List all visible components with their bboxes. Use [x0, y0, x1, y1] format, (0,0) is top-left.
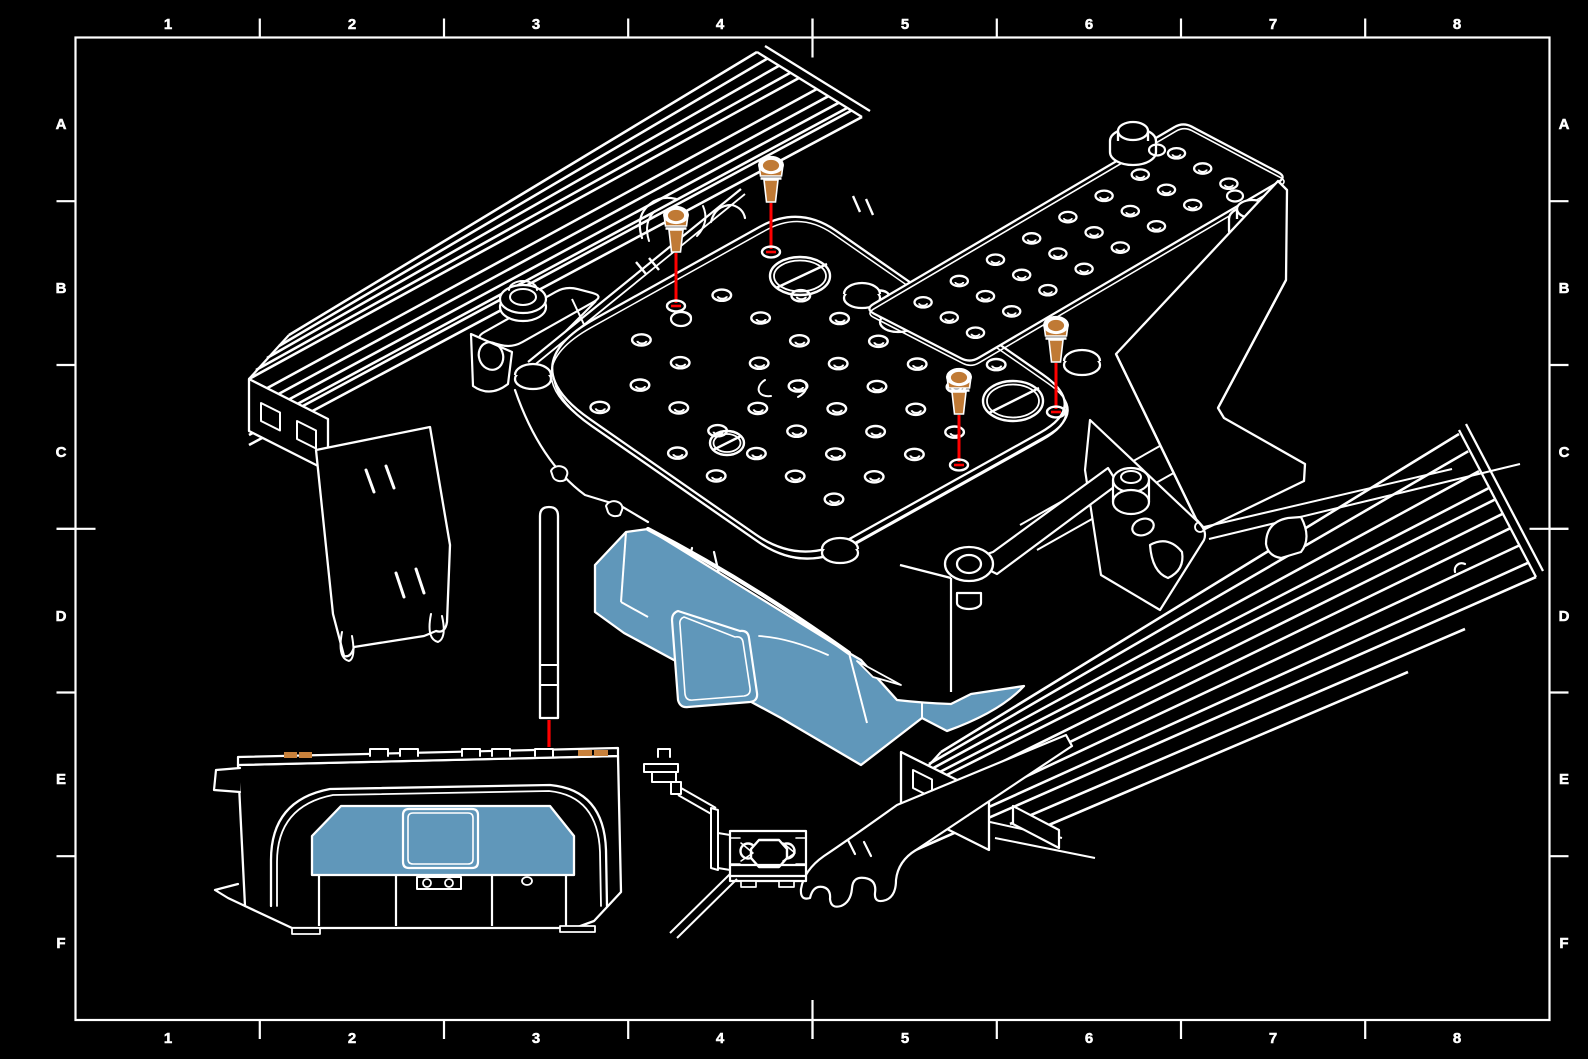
svg-text:C: C: [56, 444, 67, 461]
svg-text:5: 5: [901, 1030, 909, 1047]
svg-text:D: D: [1559, 608, 1570, 625]
svg-text:E: E: [56, 771, 66, 788]
svg-text:8: 8: [1453, 1030, 1461, 1047]
svg-text:7: 7: [1269, 1030, 1277, 1047]
svg-text:F: F: [1559, 935, 1568, 952]
svg-text:8: 8: [1453, 16, 1461, 33]
svg-text:4: 4: [716, 1030, 725, 1047]
svg-text:4: 4: [716, 16, 725, 33]
svg-text:7: 7: [1269, 16, 1277, 33]
svg-text:1: 1: [164, 1030, 172, 1047]
svg-text:B: B: [56, 280, 67, 297]
svg-text:6: 6: [1085, 1030, 1093, 1047]
svg-text:2: 2: [348, 16, 356, 33]
svg-text:B: B: [1559, 280, 1570, 297]
svg-text:2: 2: [348, 1030, 356, 1047]
svg-text:6: 6: [1085, 16, 1093, 33]
svg-text:C: C: [1559, 444, 1570, 461]
svg-text:5: 5: [901, 16, 909, 33]
svg-text:3: 3: [532, 1030, 540, 1047]
svg-text:3: 3: [532, 16, 540, 33]
svg-text:D: D: [56, 608, 67, 625]
svg-text:F: F: [56, 935, 65, 952]
svg-text:1: 1: [164, 16, 172, 33]
svg-text:E: E: [1559, 771, 1569, 788]
svg-text:A: A: [1559, 116, 1570, 133]
svg-text:A: A: [56, 116, 67, 133]
